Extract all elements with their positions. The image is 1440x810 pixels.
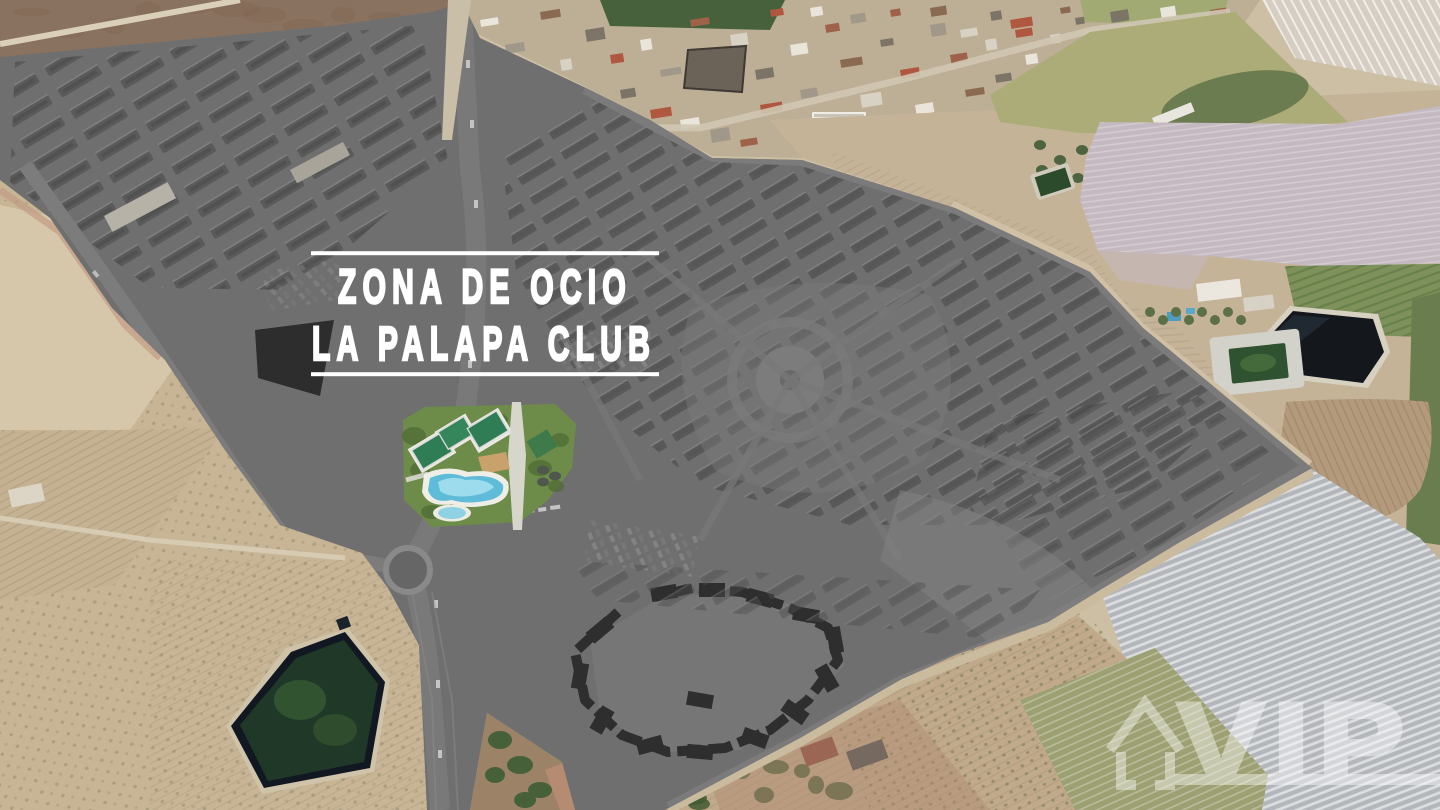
svg-text:VIP: VIP <box>1178 680 1413 805</box>
svg-text:LA PALAPA CLUB: LA PALAPA CLUB <box>312 318 656 371</box>
svg-text:ZONA DE OCIO: ZONA DE OCIO <box>338 261 632 314</box>
